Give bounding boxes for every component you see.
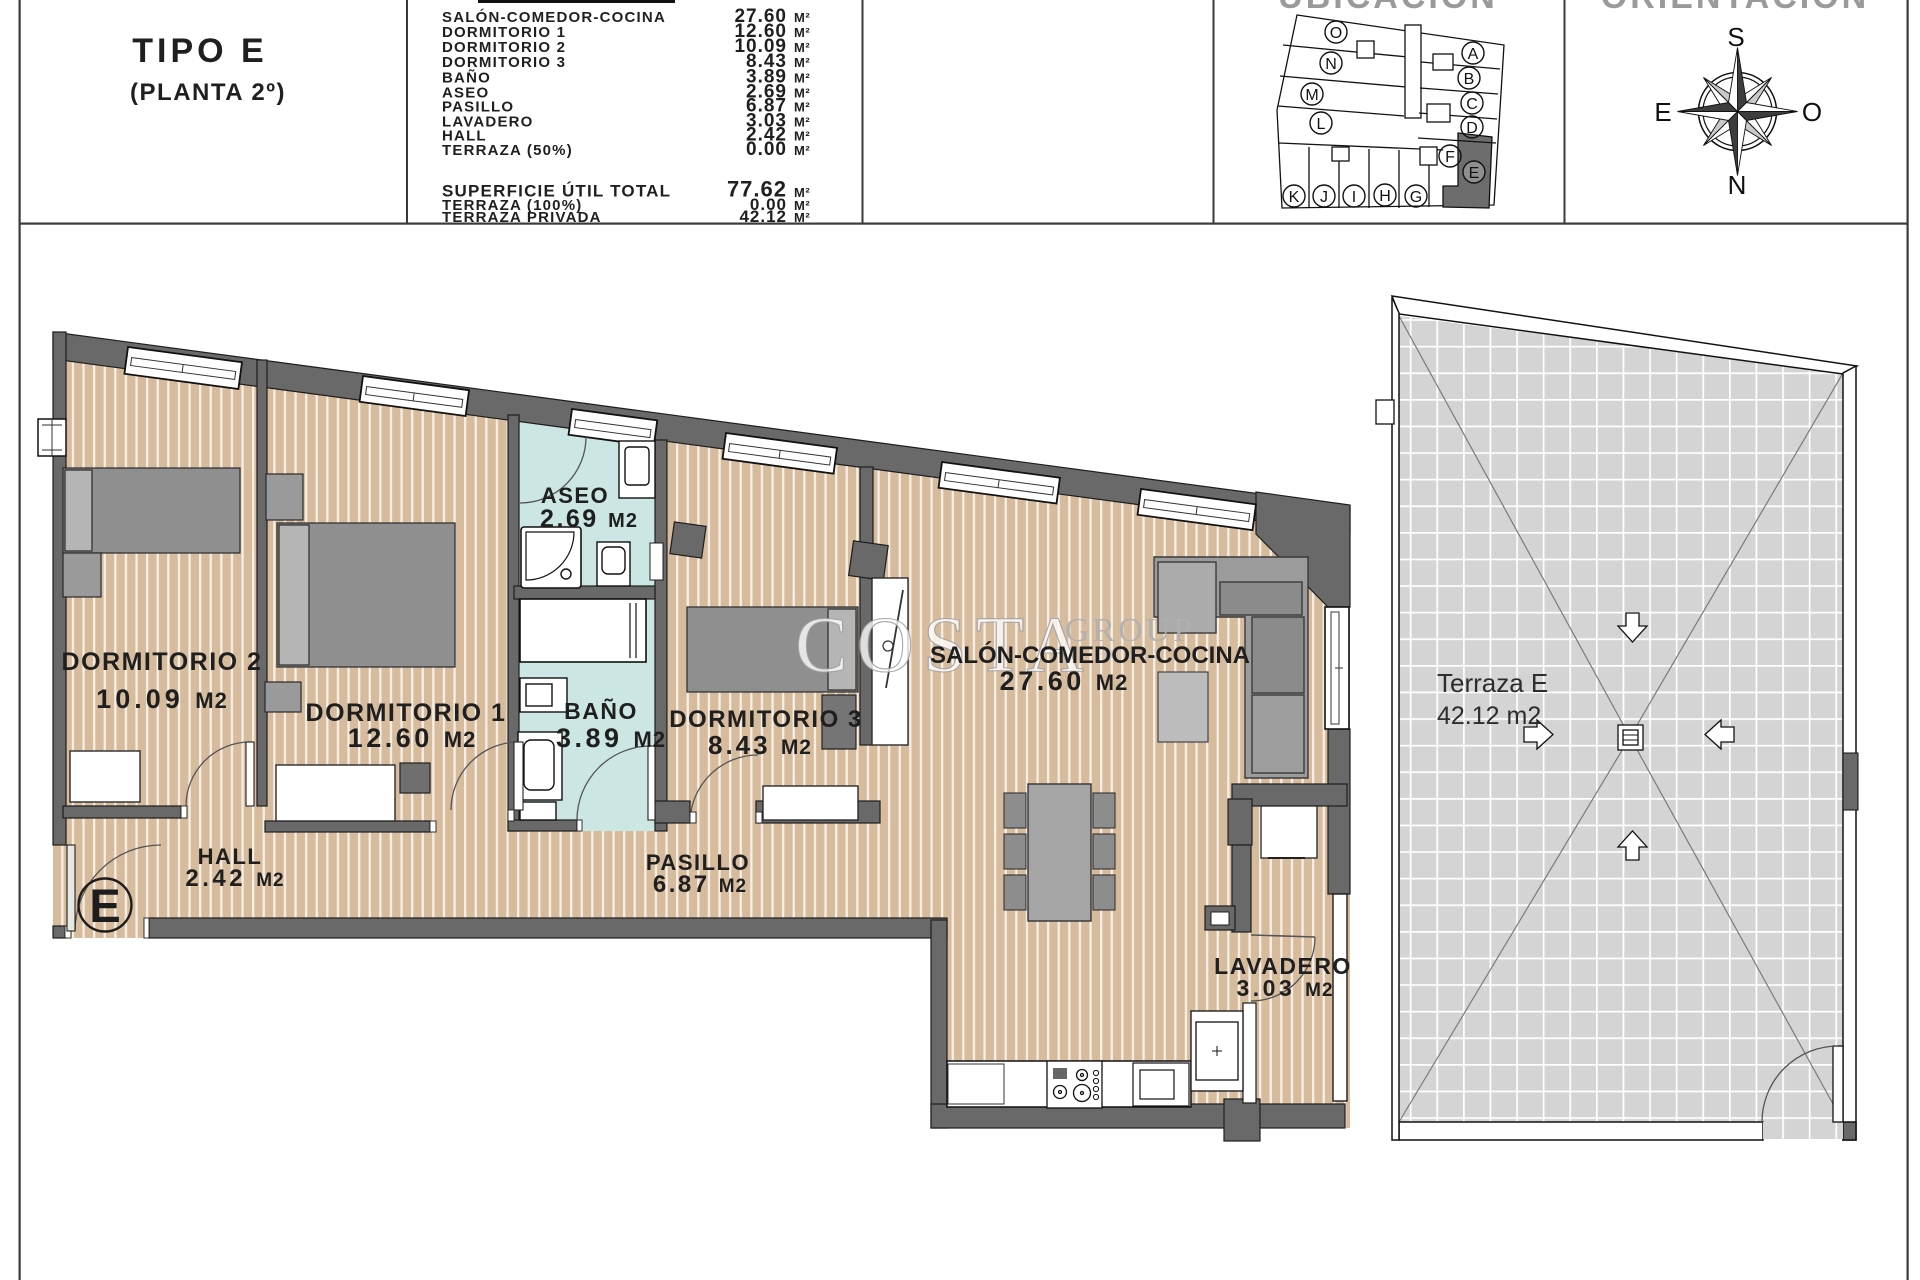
svg-text:M²: M² [794, 71, 810, 86]
svg-text:TIPO E: TIPO E [132, 32, 267, 70]
svg-text:O: O [1802, 97, 1822, 127]
svg-text:D: D [1466, 120, 1478, 137]
svg-text:B: B [1464, 71, 1475, 88]
svg-text:SALÓN-COMEDOR-COCINA: SALÓN-COMEDOR-COCINA [930, 641, 1250, 669]
svg-text:TERRAZA PRIVADA: TERRAZA PRIVADA [442, 209, 602, 226]
svg-text:Terraza E: Terraza E [1437, 668, 1548, 698]
svg-text:E: E [1469, 165, 1480, 182]
svg-text:A: A [1468, 46, 1479, 63]
svg-text:2.42 M2: 2.42 M2 [185, 865, 284, 892]
svg-text:E: E [89, 879, 120, 932]
svg-text:3.89 M2: 3.89 M2 [556, 723, 666, 753]
svg-text:12.60 M2: 12.60 M2 [348, 723, 477, 753]
svg-text:K: K [1289, 189, 1300, 206]
svg-text:42.12 m2: 42.12 m2 [1437, 702, 1541, 730]
svg-text:N: N [1325, 56, 1337, 73]
svg-text:J: J [1320, 189, 1328, 206]
svg-text:(PLANTA 2º): (PLANTA 2º) [130, 79, 286, 106]
svg-text:I: I [1352, 189, 1356, 206]
svg-text:M²: M² [794, 86, 810, 101]
svg-text:M²: M² [794, 100, 810, 115]
svg-text:DORMITORIO 3: DORMITORIO 3 [669, 706, 863, 733]
svg-text:42.12: 42.12 [739, 207, 787, 226]
svg-text:O: O [1330, 25, 1342, 42]
svg-text:L: L [1317, 116, 1326, 133]
svg-text:DORMITORIO 3: DORMITORIO 3 [442, 54, 566, 71]
svg-text:M²: M² [794, 129, 810, 144]
svg-text:M²: M² [794, 10, 810, 25]
svg-text:N: N [1728, 170, 1747, 200]
svg-text:DORMITORIO 2: DORMITORIO 2 [62, 648, 263, 676]
svg-text:M²: M² [794, 25, 810, 40]
svg-text:10.09 M2: 10.09 M2 [96, 684, 228, 714]
svg-text:G: G [1410, 189, 1422, 206]
svg-text:BAÑO: BAÑO [564, 697, 638, 724]
svg-text:M: M [1305, 87, 1318, 104]
svg-text:6.87 M2: 6.87 M2 [653, 871, 747, 898]
svg-text:E: E [1654, 97, 1671, 127]
svg-text:TERRAZA (50%): TERRAZA (50%) [442, 142, 573, 159]
svg-text:2.69 M2: 2.69 M2 [540, 505, 638, 533]
svg-text:M²: M² [794, 115, 810, 130]
svg-text:27.60 M2: 27.60 M2 [1000, 666, 1129, 696]
svg-text:H: H [1379, 188, 1391, 205]
svg-text:F: F [1445, 149, 1455, 166]
svg-text:M²: M² [794, 210, 810, 225]
svg-text:C: C [1466, 96, 1478, 113]
svg-text:M²: M² [794, 40, 810, 55]
svg-text:S: S [1727, 22, 1744, 52]
svg-text:M²: M² [794, 143, 810, 158]
svg-text:0.00: 0.00 [746, 139, 787, 160]
svg-text:ORIENTACIÓN: ORIENTACIÓN [1601, 0, 1869, 16]
svg-text:UBICACIÓN: UBICACIÓN [1278, 0, 1498, 16]
svg-text:M²: M² [794, 55, 810, 70]
